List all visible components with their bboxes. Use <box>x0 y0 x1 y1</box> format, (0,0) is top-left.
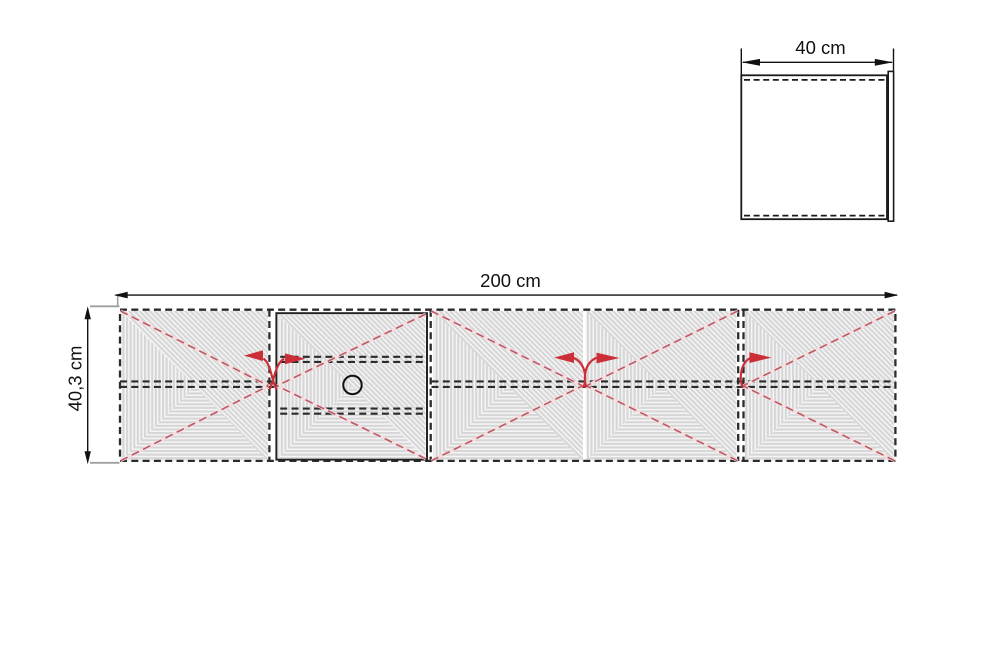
svg-text:40 cm: 40 cm <box>795 37 845 58</box>
svg-text:40,3 cm: 40,3 cm <box>65 346 86 412</box>
svg-text:200 cm: 200 cm <box>480 270 541 291</box>
